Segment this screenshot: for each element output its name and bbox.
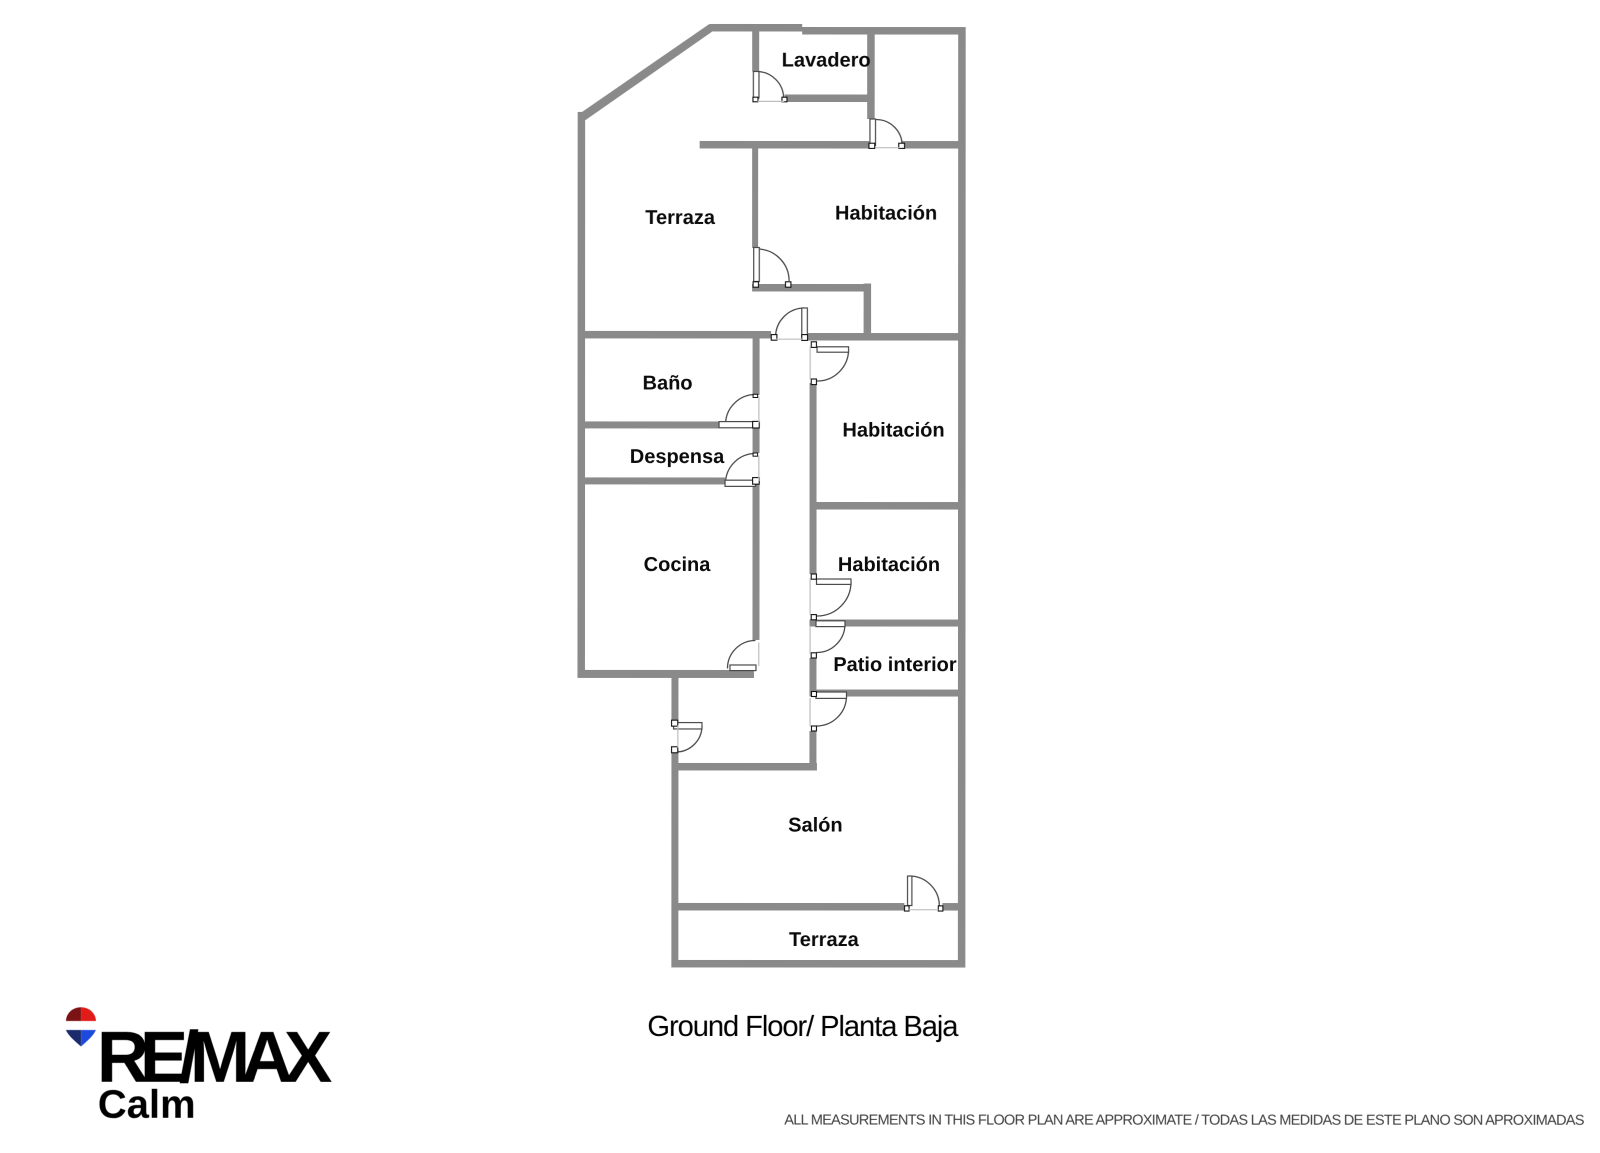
svg-text:Salón: Salón	[788, 814, 842, 836]
svg-text:Ground Floor/ Planta Baja: Ground Floor/ Planta Baja	[647, 1011, 959, 1043]
svg-text:Cocina: Cocina	[644, 554, 712, 576]
svg-text:Terraza: Terraza	[645, 207, 716, 229]
svg-text:ALL MEASUREMENTS IN THIS FLOOR: ALL MEASUREMENTS IN THIS FLOOR PLAN ARE …	[784, 1112, 1584, 1128]
svg-text:Calm: Calm	[98, 1083, 196, 1127]
svg-text:Terraza: Terraza	[789, 929, 860, 951]
svg-text:Habitación: Habitación	[842, 420, 944, 442]
svg-text:Despensa: Despensa	[630, 446, 725, 468]
svg-text:Baño: Baño	[643, 372, 693, 394]
svg-text:Lavadero: Lavadero	[782, 49, 871, 71]
svg-text:Habitación: Habitación	[835, 203, 937, 225]
svg-text:Habitación: Habitación	[838, 554, 940, 576]
svg-text:Patio interior: Patio interior	[833, 654, 957, 676]
